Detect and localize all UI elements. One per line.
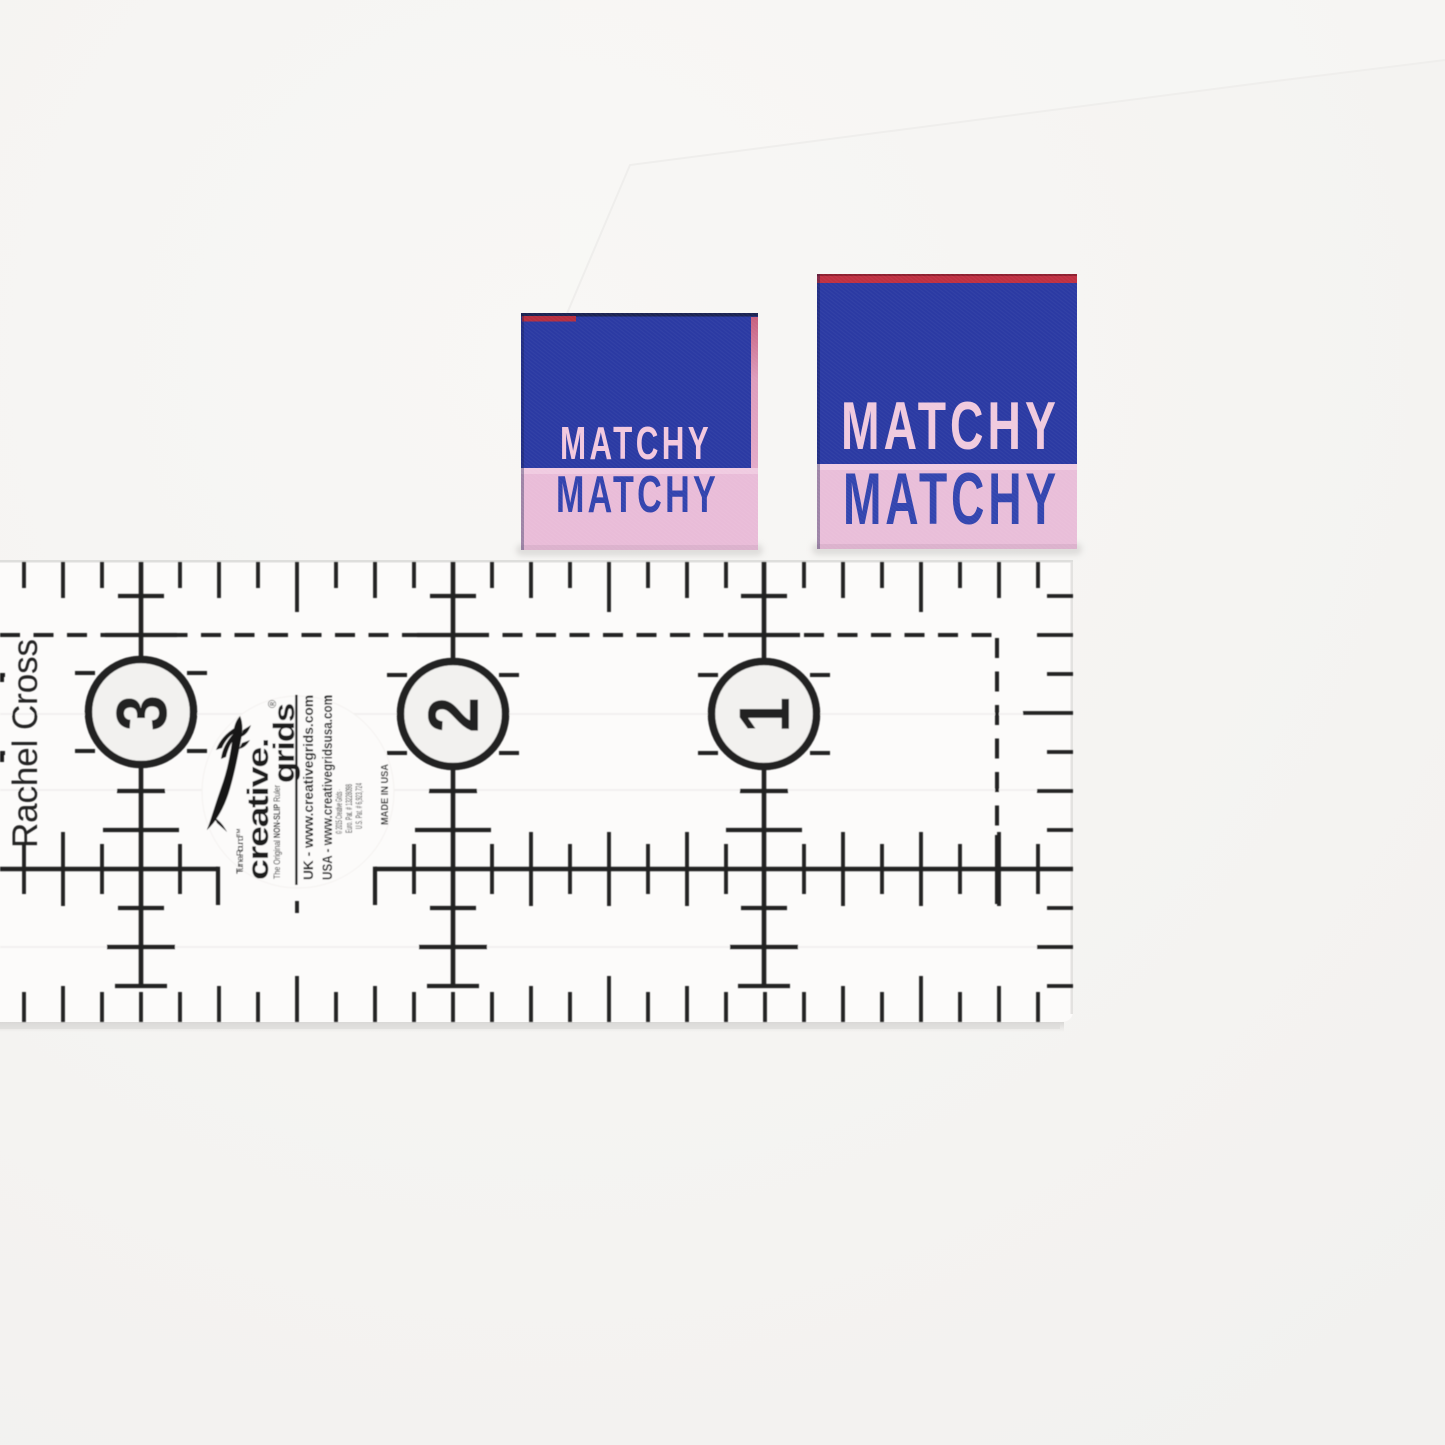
svg-text:MADE IN USA: MADE IN USA — [380, 764, 391, 825]
svg-text:1: 1 — [725, 697, 805, 733]
svg-text:Rachel Cross: Rachel Cross — [6, 639, 45, 848]
svg-text:3: 3 — [102, 695, 182, 731]
svg-text:U.S. Pat. # 6,923,724: U.S. Pat. # 6,923,724 — [354, 783, 365, 829]
svg-text:®: ® — [267, 700, 279, 708]
svg-text:2: 2 — [414, 697, 494, 733]
svg-text:UK - www.creativegrids.com: UK - www.creativegrids.com — [301, 695, 316, 880]
svg-text:USA - www.creativegridsusa.com: USA - www.creativegridsusa.com — [320, 695, 335, 880]
svg-text:The Original NON-SLIP Ruler: The Original NON-SLIP Ruler — [272, 785, 283, 879]
